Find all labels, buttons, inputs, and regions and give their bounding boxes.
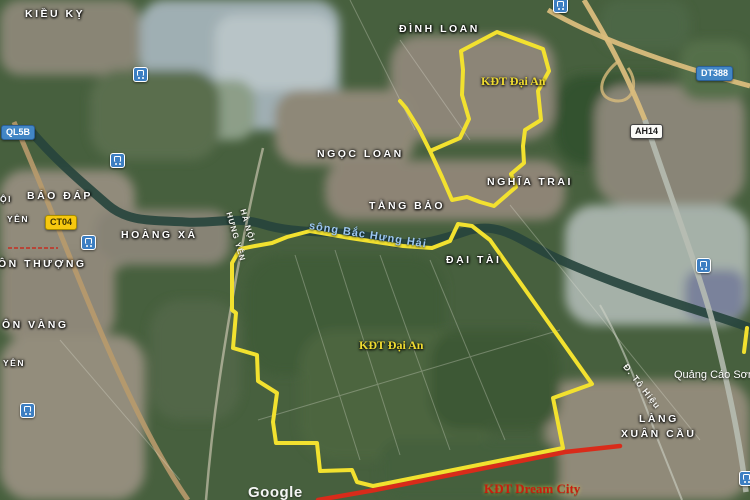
transit-icon-6[interactable] — [20, 403, 35, 418]
label-xuan-cau: XUÂN CẦU — [621, 428, 696, 440]
label-kdt-dream-city: KĐT Dream City — [484, 481, 580, 497]
label-river: sông Bắc Hưng Hải — [308, 220, 428, 250]
transit-icon-5[interactable] — [696, 258, 711, 273]
label-kdt-dai-an-north: KĐT Đại An — [481, 74, 545, 89]
label-quang-cao-son: Quảng Cáo Sơn — [674, 369, 750, 381]
transit-icon-1[interactable] — [133, 67, 148, 82]
transit-icon-2[interactable] — [110, 153, 125, 168]
transit-icon-4[interactable] — [553, 0, 568, 13]
transit-icon-7[interactable] — [739, 471, 750, 486]
shield-dt388: DT388 — [696, 66, 733, 81]
label-lang: LÀNG — [639, 413, 679, 425]
bus-glyph — [137, 70, 144, 76]
bus-glyph — [114, 156, 121, 162]
shield-ct04: CT04 — [45, 215, 77, 230]
label-oi: ỘI — [0, 194, 12, 204]
label-kieu-ky: KIỀU KỴ — [25, 8, 85, 20]
label-hung-yen-road: HƯNG YÊN — [224, 211, 247, 262]
bus-glyph — [85, 238, 92, 244]
label-hoang-xa: HOÀNG XÁ — [121, 229, 198, 241]
label-yen-2: YÊN — [3, 358, 25, 368]
label-dinh-loan: ĐÌNH LOAN — [399, 23, 480, 35]
label-nghia-trai: NGHĨA TRAI — [487, 176, 573, 188]
transit-icon-3[interactable] — [81, 235, 96, 250]
map-canvas[interactable]: KIỀU KỴĐÌNH LOANNGỌC LOANNGHĨA TRAIBÁO Đ… — [0, 0, 750, 500]
label-ha-noi-road: HÀ NỘI — [238, 208, 256, 243]
label-yen-1: YÊN — [7, 214, 29, 224]
label-layer: KIỀU KỴĐÌNH LOANNGỌC LOANNGHĨA TRAIBÁO Đ… — [0, 0, 750, 500]
google-watermark: Google — [248, 484, 303, 500]
label-ngoc-loan: NGỌC LOAN — [317, 148, 404, 160]
shield-ah14: AH14 — [630, 124, 663, 139]
bus-glyph — [700, 261, 707, 267]
label-kdt-dai-an-south: KĐT Đại An — [359, 338, 423, 353]
label-thon-vang: ÔN VÀNG — [2, 319, 69, 331]
label-bao-dap: BÁO ĐÁP — [27, 190, 93, 202]
label-tang-bao: TẰNG BẢO — [369, 200, 445, 212]
bus-glyph — [557, 1, 564, 7]
bus-glyph — [743, 474, 750, 480]
label-dai-tai: ĐẠI TÀI — [446, 254, 501, 266]
bus-glyph — [24, 406, 31, 412]
shield-ql5b: QL5B — [1, 125, 35, 140]
label-to-hieu-road: Đ. Tô Hiệu — [621, 362, 662, 411]
label-thon-thuong: ÔN THƯỢNG — [0, 258, 87, 270]
